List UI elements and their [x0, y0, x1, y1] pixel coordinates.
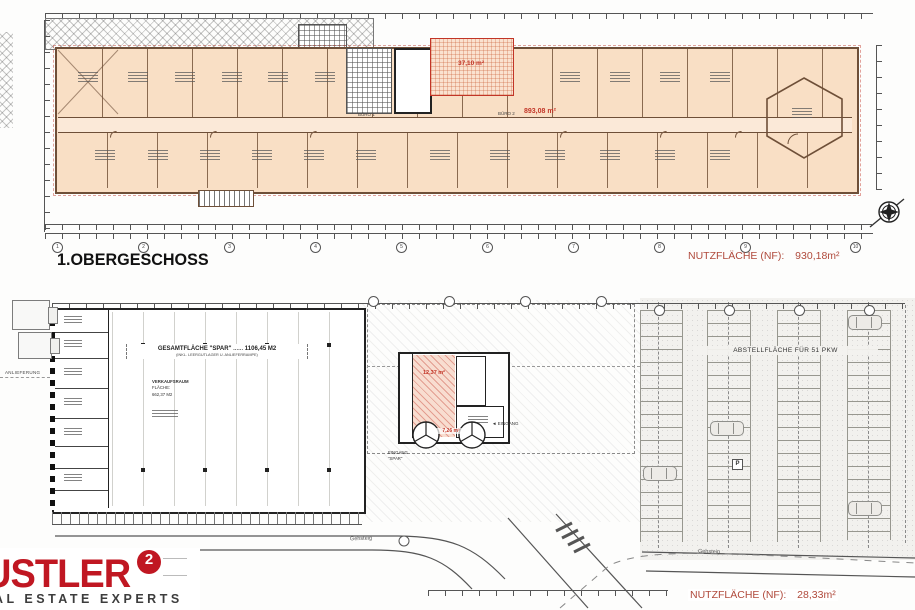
- service-room-divider: [55, 490, 108, 491]
- room-label: [660, 72, 680, 82]
- grid-bubble-lower: [724, 305, 735, 316]
- nutzflaeche-upper-value: 930,18m²: [795, 250, 839, 262]
- room-label: [78, 72, 98, 82]
- logo: USTLER 2 AL ESTATE EXPERTS: [0, 548, 200, 610]
- verkaufsraum-block: VERKAUFSRAUM FLÄCHE: 662,37 M2: [152, 379, 189, 398]
- grid-bubble-lower: [596, 296, 607, 307]
- grid-bubble-lower: [520, 296, 531, 307]
- logo-rule-top: [163, 558, 187, 559]
- room-label: [304, 150, 324, 160]
- spar-total-leader: ......: [233, 346, 243, 352]
- grid-bubble: 3: [224, 242, 235, 253]
- spar-total-value: 1106,45 M2: [245, 346, 276, 352]
- logo-sup: 2: [137, 551, 161, 568]
- room-label: [200, 150, 220, 160]
- nutzflaeche-lower-label: NUTZFLÄCHE (NF):: [690, 589, 786, 601]
- nutzflaeche-lower: NUTZFLÄCHE (NF): 28,33m²: [688, 589, 838, 601]
- hall-bay-lines: [112, 312, 360, 506]
- spar-total-box: GESAMTFLÄCHE "SPAR" ...... 1106,45 M2 (I…: [126, 344, 308, 359]
- logo-subtitle: AL ESTATE EXPERTS: [0, 592, 183, 606]
- room-label: [175, 72, 195, 82]
- service-room-divider: [55, 358, 108, 359]
- spar-total-note: (INKL. LEERGUTLAGER U. ANLIEFERRAMPE): [131, 353, 303, 357]
- room-label: [315, 72, 335, 82]
- nutzflaeche-upper-label: NUTZFLÄCHE (NF):: [688, 250, 784, 262]
- service-room-label: [64, 398, 82, 406]
- delivery-truck-icon: [18, 332, 52, 359]
- service-room-label: [64, 428, 82, 436]
- exterior-stair: [198, 190, 254, 207]
- car-icon: [848, 315, 882, 330]
- service-room-label: [64, 368, 82, 376]
- parking-label: ABSTELLFLÄCHE FÜR 51 PKW: [693, 346, 878, 355]
- nutzflaeche-upper: NUTZFLÄCHE (NF): 930,18m²: [688, 250, 840, 262]
- grid-bubble-lower: [368, 296, 379, 307]
- grid-bubble-lower: [444, 296, 455, 307]
- service-room-label: [64, 474, 82, 482]
- column: [327, 343, 331, 347]
- dimension-line-right: [876, 45, 882, 190]
- column: [327, 468, 331, 472]
- grid-bubble: 10: [850, 242, 861, 253]
- service-strip-wall: [108, 310, 109, 508]
- room-label: [490, 150, 510, 160]
- room-label: [655, 150, 675, 160]
- core-staircase: [456, 356, 486, 406]
- anlieferung-label: ANLIEFERUNG: [5, 370, 40, 375]
- buero1-label: BÜRO 1: [358, 112, 375, 117]
- service-room-divider: [55, 418, 108, 419]
- service-room-label: [64, 316, 82, 324]
- service-room-label: [64, 340, 82, 348]
- entrance-bottom-label: EINGANG "SPAR": [388, 450, 408, 462]
- anlieferung-dashed-line: [0, 377, 50, 378]
- lobby-area-value: 12,37 m²: [414, 370, 454, 376]
- service-room-divider: [55, 446, 108, 447]
- grid-bubble-lower: [794, 305, 805, 316]
- entrance-right-label: ◄ EINGANG: [492, 421, 518, 426]
- floor-plan-document: 37,10 m² BÜRO 1 BÜRO 2 893,08 m² 1 2 3 4…: [0, 0, 915, 610]
- dimension-line-bottom-2: [45, 233, 873, 239]
- buero2-label: BÜRO 2: [498, 111, 515, 116]
- room-label: [545, 150, 565, 160]
- room-label: [710, 72, 730, 82]
- room-label: [710, 150, 730, 160]
- entrance-circles: [404, 418, 496, 454]
- ramp-lines: [56, 48, 120, 116]
- north-compass-icon: [868, 194, 906, 232]
- neighbour-hatch-strip: [0, 32, 13, 128]
- sidewalk-label-left: Gehsteig: [350, 536, 372, 543]
- hall-note: [152, 410, 178, 418]
- verkaufsraum-value: 662,37 M2: [152, 392, 189, 398]
- stair-area-value: 37,10 m²: [438, 60, 504, 67]
- room-label: [430, 150, 450, 160]
- grid-bubble-lower: [864, 305, 875, 316]
- atrium-void: [346, 48, 392, 114]
- grid-bubble: 4: [310, 242, 321, 253]
- room-label: [95, 150, 115, 160]
- service-room-divider: [55, 468, 108, 469]
- grid-bubble-lower: [654, 305, 665, 316]
- parking-sign: P: [732, 459, 743, 470]
- nutzflaeche-lower-value: 28,33m²: [797, 589, 836, 601]
- dimension-line-lower-bottom: [428, 590, 668, 596]
- grid-bubble: 7: [568, 242, 579, 253]
- room-label: [222, 72, 242, 82]
- entrance-bottom-line2: "SPAR": [388, 456, 408, 462]
- column: [203, 468, 207, 472]
- room-label: [356, 150, 376, 160]
- room-label: [252, 150, 272, 160]
- service-room-divider: [55, 388, 108, 389]
- hexagon-room: [758, 72, 850, 164]
- delivery-truck-icon: [12, 300, 50, 330]
- sidewalk-label-right: Gehsteig: [698, 549, 720, 556]
- room-label: [600, 150, 620, 160]
- entry-area-value: 7,26 m²: [436, 428, 466, 434]
- room-label: [268, 72, 288, 82]
- grid-bubble: 5: [396, 242, 407, 253]
- car-icon: [643, 466, 677, 481]
- room-label: [148, 150, 168, 160]
- car-icon: [710, 421, 744, 436]
- logo-sup-badge: 2: [137, 550, 161, 574]
- staircase: [394, 48, 432, 114]
- floor-title: 1.OBERGESCHOSS: [57, 250, 209, 270]
- corridor: [58, 117, 852, 133]
- room-label: [128, 72, 148, 82]
- room-label: [560, 72, 580, 82]
- stairwell-red-area: [430, 38, 514, 96]
- room-label: [610, 72, 630, 82]
- spar-total-label: GESAMTFLÄCHE "SPAR": [158, 346, 232, 352]
- office-rooms-bottom-row: [58, 131, 852, 188]
- logo-text: USTLER: [0, 552, 130, 597]
- service-room-divider: [55, 332, 108, 333]
- column: [141, 468, 145, 472]
- grid-bubble: 8: [654, 242, 665, 253]
- office-area-value: 893,08 m²: [524, 108, 556, 115]
- grid-bubble: 6: [482, 242, 493, 253]
- dimension-line-left: [44, 20, 50, 232]
- column: [265, 468, 269, 472]
- logo-rule-bottom: [163, 575, 187, 576]
- dimension-line-bottom-1: [45, 224, 873, 230]
- crosswalk: [556, 523, 590, 552]
